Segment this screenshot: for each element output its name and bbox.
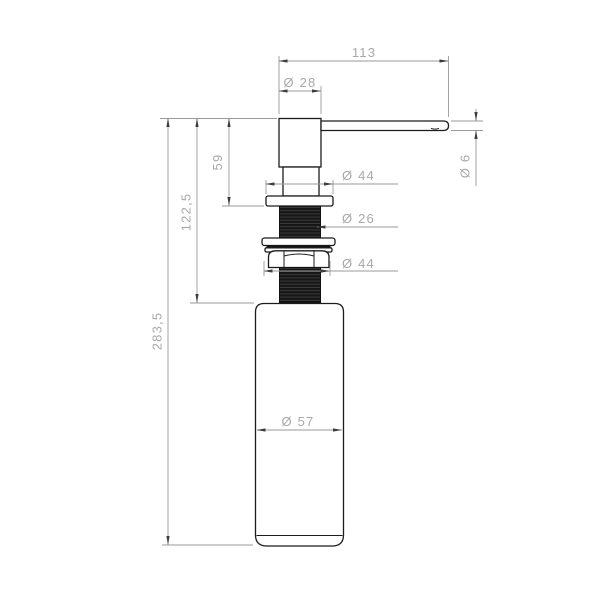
- spout-tube: [321, 121, 449, 131]
- dim-label-spout-length: 113: [352, 45, 376, 60]
- flange-plate: [266, 196, 333, 206]
- dim-label-locknut-diameter: Ø 44: [342, 256, 375, 271]
- dim-label-head-diameter: Ø 28: [284, 75, 317, 90]
- drawing-page: 113 Ø 28 59 122,5 283,5 Ø 44 Ø 26 Ø 44: [0, 0, 600, 600]
- technical-drawing-canvas: 113 Ø 28 59 122,5 283,5 Ø 44 Ø 26 Ø 44: [0, 0, 600, 600]
- dim-label-spout-tip-diameter: Ø 6: [458, 154, 473, 179]
- thread-lower: [280, 268, 321, 303]
- dim-label-flange-diameter: Ø 44: [342, 168, 375, 183]
- dim-label-thread-diameter: Ø 26: [342, 211, 375, 226]
- thread-upper: [280, 206, 321, 238]
- hex-nut: [269, 251, 330, 268]
- dim-label-overall-height: 283,5: [150, 312, 165, 351]
- pump-neck: [283, 167, 319, 196]
- washer-top: [262, 238, 335, 246]
- ext-spout-tip-right: [451, 121, 483, 131]
- dim-label-bottle-diameter: Ø 57: [282, 414, 315, 429]
- dim-label-head-to-bottle-top: 122,5: [179, 193, 194, 232]
- pump-head: [279, 119, 321, 168]
- dim-label-head-to-flange: 59: [210, 154, 225, 171]
